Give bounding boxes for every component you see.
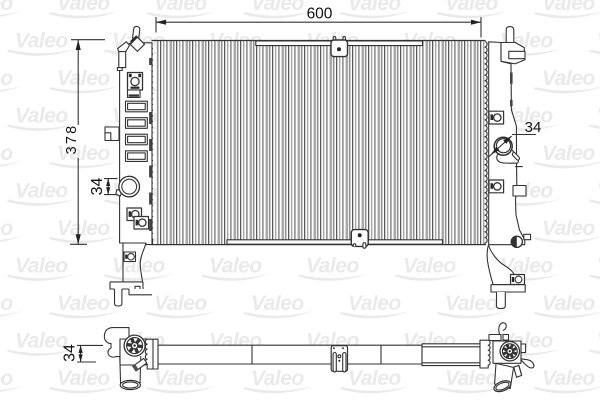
svg-text:34: 34 [525, 119, 542, 136]
svg-text:34: 34 [89, 178, 106, 196]
svg-text:34: 34 [62, 344, 79, 362]
svg-text:600: 600 [307, 6, 333, 23]
svg-text:378: 378 [64, 124, 80, 155]
